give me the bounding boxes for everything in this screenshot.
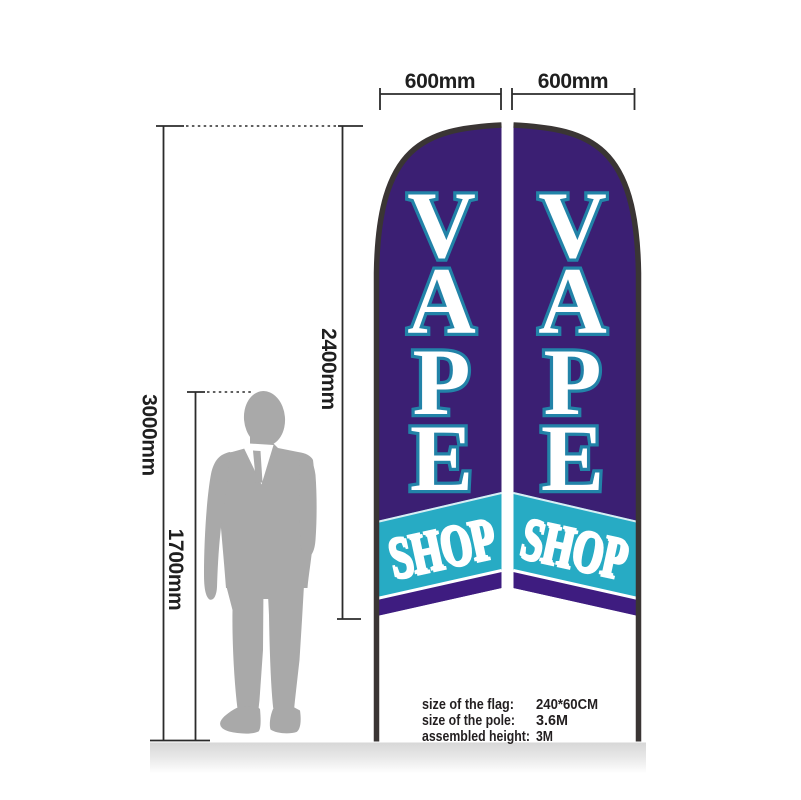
svg-text:size of the pole:: size of the pole:	[422, 713, 515, 729]
svg-text:600mm: 600mm	[538, 70, 608, 93]
svg-text:size of the flag:: size of the flag:	[422, 697, 514, 713]
svg-text:3000mm: 3000mm	[138, 394, 161, 476]
svg-text:1700mm: 1700mm	[164, 529, 187, 611]
svg-text:assembled height:: assembled height:	[422, 729, 530, 745]
svg-text:E: E	[541, 405, 604, 511]
svg-text:2400mm: 2400mm	[317, 328, 340, 410]
svg-text:3M: 3M	[536, 729, 553, 745]
svg-text:600mm: 600mm	[405, 70, 475, 93]
svg-text:240*60CM: 240*60CM	[536, 697, 598, 713]
svg-text:3.6M: 3.6M	[536, 713, 568, 729]
svg-text:E: E	[410, 405, 473, 511]
